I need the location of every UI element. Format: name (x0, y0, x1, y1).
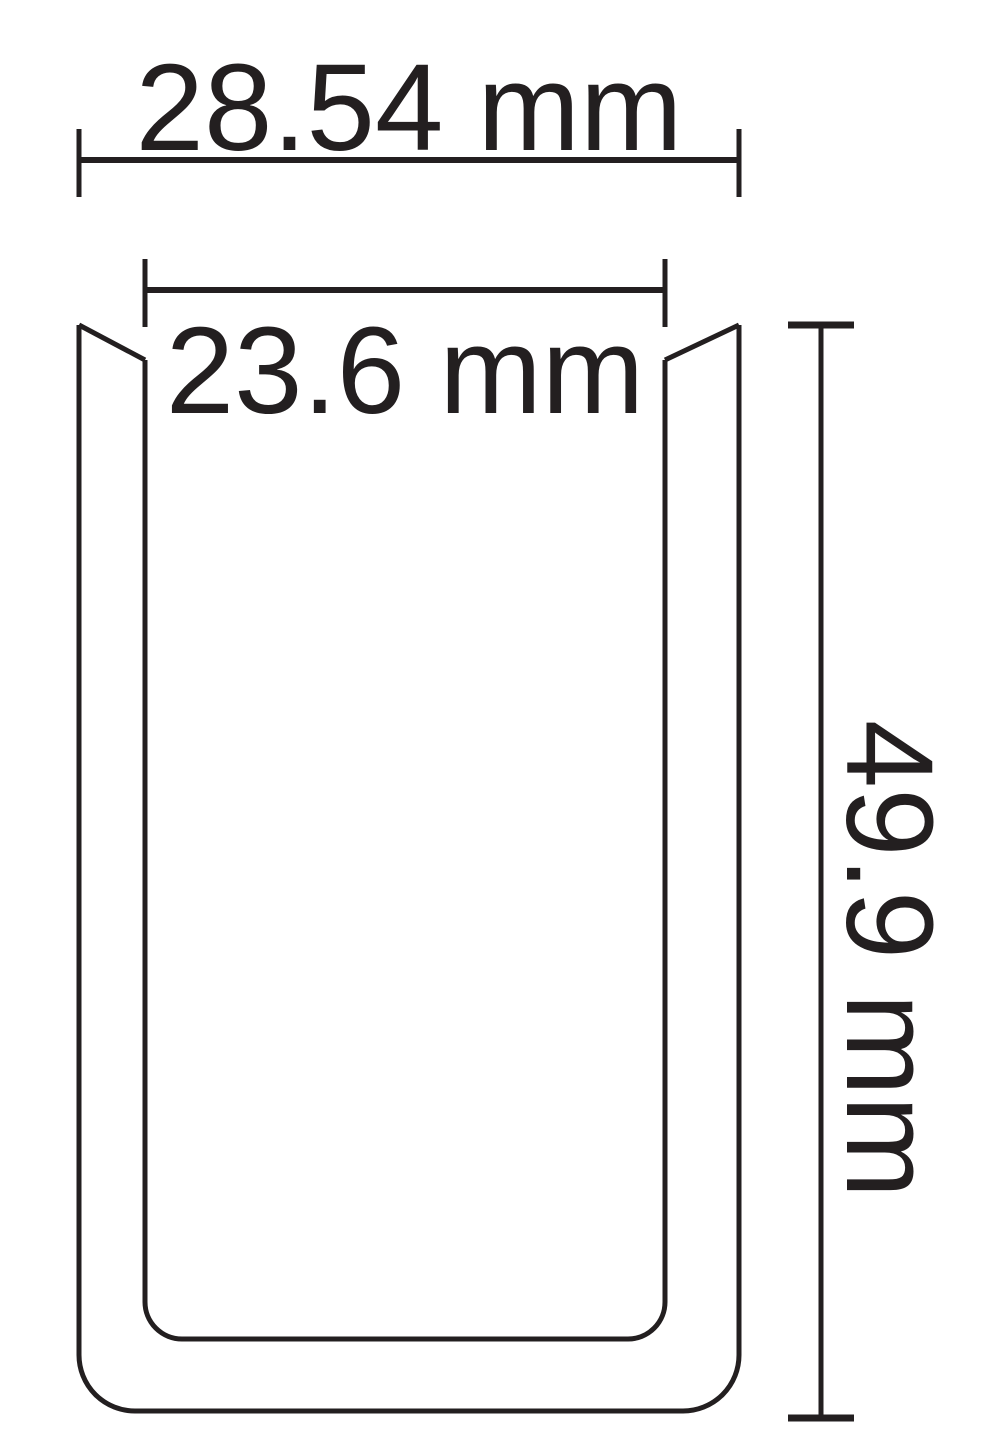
u-channel-drawing: 28.54 mm 23.6 mm 49.9 mm (0, 0, 1000, 1449)
dim-labels-group: 28.54 mm 23.6 mm 49.9 mm (136, 40, 957, 1198)
technical-drawing-page: 28.54 mm 23.6 mm 49.9 mm (0, 0, 1000, 1449)
dim-inner-width-label: 23.6 mm (166, 303, 645, 440)
profile-inner-contour (145, 360, 665, 1339)
profile-right-top-chamfer (665, 325, 739, 360)
dim-height-label: 49.9 mm (820, 720, 957, 1199)
dim-outer-width-label: 28.54 mm (136, 40, 683, 177)
profile-outer-contour (79, 325, 739, 1411)
profile-outline-group (79, 325, 739, 1411)
profile-left-top-chamfer (79, 325, 145, 360)
